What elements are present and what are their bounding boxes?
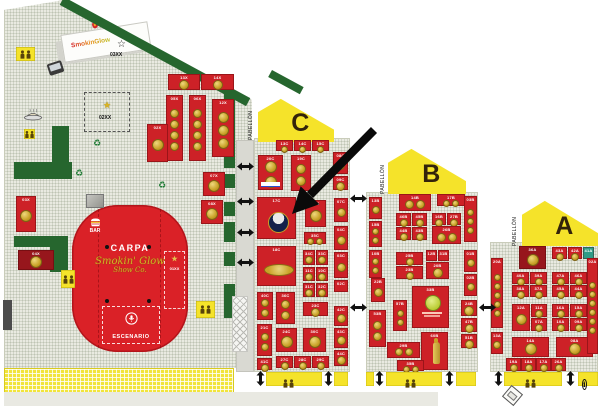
tent-pole (105, 299, 109, 303)
coin-icon (527, 254, 539, 266)
coin-icon (193, 109, 202, 118)
booth-26A[interactable]: 26A (551, 358, 566, 371)
booth-label: 29C (313, 358, 328, 363)
coin-icon (589, 291, 596, 298)
booth-44A[interactable]: 44A (570, 285, 587, 297)
bar-label: BAR (84, 229, 106, 234)
wall-diagonal (268, 70, 303, 94)
booth-37A[interactable]: 37A (530, 285, 547, 297)
coin-icon (337, 336, 346, 345)
recycle-icon: ♻ (93, 140, 101, 149)
ticket-office-icon (502, 385, 523, 406)
coin-icon (400, 219, 408, 227)
coin-markers (571, 324, 586, 329)
pavilion-A-letter: A (555, 212, 573, 241)
coin-markers (334, 182, 347, 188)
booth-label: 14C (295, 142, 310, 147)
coin-icon (535, 324, 543, 332)
coin-icon (281, 336, 293, 348)
booth-label: 09C (334, 178, 347, 183)
booth-38A[interactable]: 38A (512, 285, 529, 297)
booth-logo-text (422, 312, 442, 314)
coin-markers (465, 280, 476, 294)
booth-35C[interactable]: 35C (304, 232, 326, 244)
booth-16C[interactable]: 16C (305, 200, 326, 227)
booth-label: 20A (492, 260, 502, 265)
coin-markers (388, 348, 419, 356)
coin-icon (337, 236, 346, 245)
entrance-arrow-icon (566, 371, 575, 391)
booth-36A[interactable]: 36A (519, 246, 546, 269)
coin-icon (305, 289, 313, 297)
booth-14B[interactable]: 14B (399, 194, 431, 211)
coin-icon (557, 310, 565, 318)
booth-07X[interactable]: 07X (203, 172, 225, 196)
pavilion-B-letter: B (422, 160, 440, 189)
booth-42C[interactable]: 42C (334, 306, 348, 326)
coin-icon (193, 142, 202, 151)
booth-29C[interactable]: 29C (312, 356, 329, 368)
coin-icon (170, 142, 179, 151)
booth-08C[interactable]: 08C (333, 152, 348, 174)
wall-segment (14, 162, 72, 179)
pavilion-A-pabellon-label: PABELLÓN (512, 217, 518, 246)
coin-icon (406, 258, 414, 266)
booth-label: 29B (388, 344, 419, 349)
booth-44B[interactable]: 44B (396, 227, 411, 240)
coin-icon (437, 233, 446, 242)
coin-markers (370, 203, 381, 217)
entrance-strip (456, 372, 476, 386)
coin-markers (569, 253, 581, 257)
coin-icon (493, 341, 501, 349)
coin-markers (552, 364, 565, 369)
entrance-strip (578, 372, 598, 386)
booth-09A[interactable]: 09A (570, 318, 587, 331)
coin-markers (433, 232, 460, 242)
booth-label: 47A (553, 274, 568, 279)
booth-14X[interactable]: 14X (201, 74, 234, 90)
booth-15A[interactable]: 15A (570, 304, 587, 317)
booth-26B[interactable]: 26B (432, 226, 461, 244)
booth-13A[interactable]: 13A (491, 332, 503, 354)
coin-icon (510, 364, 518, 372)
booth-33C[interactable]: 33C (316, 250, 328, 265)
booth-label: 12B (427, 252, 436, 257)
coin-icon (452, 200, 459, 207)
coin-icon (494, 283, 501, 290)
booth-34C[interactable]: 34C (303, 250, 315, 265)
booth-42A[interactable]: 42A (568, 247, 582, 259)
booth-label: 31B (439, 252, 448, 257)
booth-20C[interactable]: 20C (258, 155, 283, 190)
booth-47B[interactable]: 47B (461, 318, 477, 332)
booth-12X[interactable]: 12X (212, 99, 234, 157)
booth-label: 12A (513, 306, 529, 311)
booth-24C[interactable]: 24C (276, 328, 297, 352)
booth-41C[interactable]: 41C (257, 358, 272, 370)
coin-markers (532, 310, 546, 315)
coin-markers (202, 206, 222, 222)
booth-04C[interactable]: 04C (334, 226, 348, 250)
booth-46B[interactable]: 46B (396, 213, 411, 226)
booth-label: 18A (522, 360, 535, 365)
booth-31C[interactable]: 31C (303, 283, 315, 297)
coin-icon (208, 180, 220, 192)
coin-icon (569, 343, 581, 355)
booth-01B[interactable]: 01B (464, 250, 477, 272)
pavilion-B-pabellon-label: PABELLÓN (380, 165, 386, 194)
stage-area[interactable]: ESCENARIO (102, 306, 160, 344)
coin-markers (202, 80, 233, 88)
coin-icon (395, 348, 403, 356)
booth-18A[interactable]: 18A (521, 358, 536, 371)
booth-11C[interactable]: 11C (303, 267, 315, 281)
booth-35B[interactable]: 35B (397, 360, 424, 371)
coin-markers (258, 298, 272, 318)
star-icon: ★ (165, 256, 184, 263)
escenario-label: ESCENARIO (103, 334, 159, 340)
coin-markers (304, 308, 327, 314)
coin-markers (433, 219, 445, 223)
booth-13C[interactable]: 13C (276, 140, 293, 151)
booth-label: 18C (258, 248, 295, 253)
booth-label: 22B (372, 280, 384, 285)
coin-markers (148, 130, 167, 160)
booth-label: 42A (569, 249, 581, 254)
restroom-icon (524, 375, 537, 393)
coin-markers (317, 273, 327, 279)
booth-31B[interactable]: 31B (438, 250, 449, 261)
booth-03B[interactable]: 03B (464, 196, 477, 242)
coin-markers (571, 278, 586, 282)
booth-label: 28C (295, 358, 310, 363)
food-icon (22, 108, 44, 128)
booth-10C[interactable]: 10C (316, 267, 328, 281)
coin-markers (397, 233, 410, 238)
booth-43A[interactable]: 43A (552, 247, 567, 259)
coin-icon (261, 343, 269, 351)
booth-13X[interactable]: 13X (168, 74, 200, 90)
booth-label: 46A (571, 274, 586, 279)
entrance-arrow-icon (494, 371, 503, 391)
coin-icon (281, 311, 290, 320)
coin-icon (397, 319, 404, 326)
booth-14A[interactable]: 14A (512, 337, 549, 357)
coin-icon (540, 364, 548, 372)
booth-10B[interactable]: 10B (369, 250, 382, 278)
booth-18C[interactable]: 18C (257, 246, 296, 286)
zone-01xx[interactable]: ★ 01XX (164, 251, 185, 309)
booth-03C[interactable]: 03C (334, 252, 348, 278)
coin-icon (318, 256, 326, 264)
tent-pole (147, 299, 151, 303)
booth-08X[interactable]: 08X (201, 200, 223, 224)
entrance-strip (366, 372, 374, 386)
coin-markers (317, 289, 327, 295)
coin-markers (17, 202, 35, 230)
coin-markers (306, 206, 325, 225)
coin-icon (307, 238, 314, 245)
booth-label: 31C (304, 285, 314, 290)
booth-20A[interactable]: 20A (491, 258, 503, 328)
booth-02C[interactable]: 02C (334, 280, 348, 292)
bottle-icon-top (434, 338, 438, 343)
coin-icon (372, 237, 379, 244)
coin-markers (169, 80, 199, 88)
coin-markers (304, 256, 314, 263)
coin-icon (467, 227, 474, 234)
booth-22B[interactable]: 22B (371, 278, 385, 302)
booth-27B[interactable]: 27B (447, 213, 461, 225)
booth-label: 41A (584, 249, 593, 254)
booth-23B[interactable]: 23B (396, 266, 423, 279)
coin-markers (513, 310, 529, 329)
coin-icon (494, 274, 501, 281)
restroom-icon (404, 375, 417, 393)
booth-19C[interactable]: 19C (291, 155, 311, 191)
booth-label: 34C (304, 252, 314, 257)
booth-label: 26A (552, 360, 565, 365)
coin-icon (589, 300, 596, 307)
booth-label: 23C (304, 304, 327, 309)
booth-12B[interactable]: 12B (426, 250, 437, 261)
booth-label: 13A (492, 334, 502, 339)
booth-12A[interactable]: 12A (512, 304, 530, 331)
coin-markers (413, 233, 426, 238)
coin-markers (213, 105, 233, 155)
booth-46A[interactable]: 46A (570, 272, 587, 284)
booth-label: 02C (335, 282, 347, 287)
booth-40A[interactable]: 40A (512, 272, 529, 284)
booth-label: 02B (465, 276, 476, 281)
coin-markers (462, 324, 476, 330)
booth-02A[interactable]: 02A (587, 258, 598, 354)
booth-44C[interactable]: 44C (334, 350, 348, 366)
coin-icon (405, 348, 413, 356)
coin-markers (335, 356, 347, 364)
pavilion-C-banner: C (258, 98, 334, 142)
booth-10A[interactable]: 10A (552, 318, 569, 331)
coin-markers (532, 324, 546, 329)
coin-markers (304, 289, 314, 295)
booth-60B[interactable]: 60B (421, 332, 448, 370)
booth-09C[interactable]: 09C (333, 176, 348, 190)
booth-label: 46B (397, 215, 410, 220)
pavilion-A-banner: A (522, 200, 598, 246)
booth-label: 09A (571, 320, 586, 325)
booth-07C[interactable]: 07C (334, 198, 348, 222)
booth-label: 12X (213, 101, 233, 106)
entrance-walkway (4, 368, 234, 394)
ticket-glyph (507, 390, 518, 400)
coin-icon (179, 80, 189, 90)
carpa-tent[interactable]: BAR CARPA Smokin' Glow Show Co. ★ 01XX E… (72, 205, 188, 352)
coin-markers (370, 227, 381, 245)
booth-label: 35C (305, 234, 325, 239)
coin-icon (589, 327, 596, 334)
coin-markers (313, 362, 328, 366)
coin-markers (507, 364, 520, 369)
booth-label: 07X (204, 174, 224, 179)
passage-arrow-icon (237, 224, 254, 242)
star-icon: ☆ (117, 40, 126, 50)
booth-label: 26B (433, 228, 460, 233)
coin-icon (465, 324, 474, 333)
booth-label: 30C (304, 330, 325, 335)
booth-17B[interactable]: 17B (437, 194, 465, 206)
coin-icon (589, 318, 596, 325)
coin-icon (261, 299, 269, 307)
booth-13B[interactable]: 13B (369, 197, 382, 219)
recycle-icon: ♻ (158, 182, 166, 191)
booth-label: 13B (370, 199, 381, 204)
coin-icon (318, 273, 326, 281)
booth-label: 43B (413, 229, 426, 234)
booth-28C[interactable]: 28C (294, 356, 311, 368)
coin-markers (462, 306, 476, 314)
coin-icon (589, 282, 596, 289)
booth-03X[interactable]: 03X (16, 196, 36, 232)
coin-icon (218, 125, 229, 136)
coin-icon (170, 120, 179, 129)
booth-40C[interactable]: 40C (257, 292, 273, 320)
bar-area[interactable]: BAR (84, 218, 106, 234)
booth-23C[interactable]: 23C (303, 302, 328, 316)
zone-02xx[interactable]: ★ 02XX (84, 92, 130, 132)
coin-markers (531, 278, 546, 282)
booth-label: 35B (398, 362, 423, 367)
coin-markers (397, 272, 422, 277)
coin-markers (335, 334, 347, 346)
booth-45A[interactable]: 45A (552, 285, 569, 297)
booth-label: 14X (202, 76, 233, 81)
booth-label: 16A (553, 306, 568, 311)
booth-06X[interactable]: 06X (189, 95, 206, 161)
booth-04X[interactable]: 04X (18, 250, 54, 270)
pavilion-C-letter: C (291, 109, 309, 138)
coin-markers (465, 202, 476, 240)
coin-icon (416, 219, 424, 227)
coin-icon (467, 259, 475, 267)
coin-markers (317, 256, 327, 263)
booth-label: 16B (433, 215, 445, 220)
coin-markers (571, 291, 586, 295)
booth-30C[interactable]: 30C (303, 328, 326, 352)
passage-arrow-icon (350, 190, 367, 208)
booth-21C[interactable]: 21C (257, 324, 272, 356)
coin-markers (553, 291, 568, 295)
booth-label: 23B (397, 268, 422, 273)
coin-icon (311, 308, 320, 317)
coin-markers (531, 291, 546, 295)
ground-band (4, 392, 438, 406)
coin-markers (258, 330, 271, 354)
info-letter: i (582, 379, 587, 390)
coin-icon (465, 340, 474, 349)
booth-17A[interactable]: 17A (536, 358, 551, 371)
coin-icon (152, 139, 164, 151)
coin-icon (337, 314, 346, 323)
booth-label: 40C (258, 294, 272, 299)
booth-20B[interactable]: 20B (426, 262, 449, 279)
booth-51B[interactable]: 51B (461, 334, 477, 348)
booth-02X[interactable]: 02X (147, 124, 168, 162)
booth-15B[interactable]: 15B (369, 221, 382, 247)
booth-39A[interactable]: 39A (530, 272, 547, 284)
booth-29B[interactable]: 29B (387, 342, 420, 358)
coin-markers (394, 306, 406, 329)
booth-19A[interactable]: 19A (506, 358, 521, 371)
coin-icon (494, 292, 501, 299)
booth-32C[interactable]: 32C (316, 283, 328, 297)
coin-icon (337, 263, 346, 272)
coin-icon (218, 112, 229, 123)
booth-25B[interactable]: 25B (396, 252, 423, 265)
booth-57B[interactable]: 57B (393, 300, 407, 331)
booth-11A[interactable]: 11A (531, 304, 547, 317)
booth-label: 16C (306, 202, 325, 207)
booth-05X[interactable]: 05X (166, 95, 183, 161)
booth-43C[interactable]: 43C (334, 328, 348, 348)
microphone-icon (125, 312, 138, 325)
booth-27C[interactable]: 27C (276, 356, 293, 368)
venue-map: SmokinGlow ☆ 03XX ★ 02XX BAR CARPA Smoki… (0, 0, 600, 408)
booth-14C[interactable]: 14C (294, 140, 311, 151)
coin-icon (557, 324, 565, 332)
coin-icon (305, 256, 313, 264)
coin-markers (370, 256, 381, 276)
booth-07A[interactable]: 07A (531, 318, 547, 331)
booth-16A[interactable]: 16A (552, 304, 569, 317)
coin-markers (413, 219, 426, 224)
booth-33B[interactable]: 33B (412, 286, 449, 328)
coin-icon (296, 164, 306, 174)
booth-47A[interactable]: 47A (552, 272, 569, 284)
booth-02B[interactable]: 02B (464, 274, 477, 296)
coin-markers (335, 312, 347, 324)
booth-17C[interactable]: 17C (257, 197, 296, 239)
booth-label: 17A (537, 360, 550, 365)
coin-icon (372, 267, 379, 274)
doorway (86, 194, 104, 208)
booth-24B[interactable]: 24B (461, 300, 477, 316)
booth-label: 10B (370, 252, 381, 257)
booth-label: 42C (335, 308, 347, 313)
coin-markers (370, 316, 385, 345)
info-icon[interactable]: i (582, 374, 587, 392)
coin-icon (400, 233, 408, 241)
booth-label: 13X (169, 76, 199, 81)
coin-markers (553, 324, 568, 329)
recycle-icon: ♻ (75, 170, 83, 179)
booth-53B[interactable]: 53B (369, 310, 386, 347)
booth-label: 45B (413, 215, 426, 220)
booth-label: 03C (335, 254, 347, 259)
entrance-arrow-icon (375, 371, 384, 391)
booth-43B[interactable]: 43B (412, 227, 427, 240)
coin-markers (277, 298, 294, 322)
coin-markers (304, 273, 314, 279)
booth-15C[interactable]: 15C (312, 140, 329, 151)
coin-markers (295, 362, 310, 366)
booth-16B[interactable]: 16B (432, 213, 446, 225)
coin-icon (535, 310, 543, 318)
booth-45B[interactable]: 45B (412, 213, 427, 226)
coin-icon (467, 283, 475, 291)
booth-36C[interactable]: 36C (276, 292, 295, 324)
booth-label: 07A (532, 320, 546, 325)
